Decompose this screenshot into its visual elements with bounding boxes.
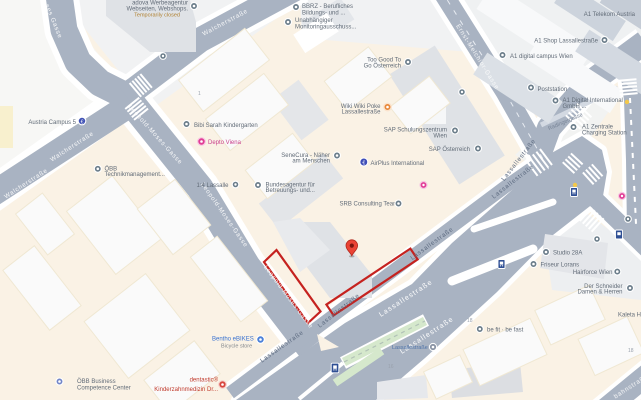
svg-text:1: 1 — [198, 91, 201, 97]
svg-text:AirPlus International: AirPlus International — [371, 161, 425, 167]
svg-text:Bicycle store: Bicycle store — [221, 344, 252, 350]
svg-text:A1 Telekom Austria: A1 Telekom Austria — [584, 12, 636, 18]
svg-text:Monitoringausschuss...: Monitoringausschuss... — [295, 25, 357, 31]
svg-text:ÖBB Business: ÖBB Business — [77, 378, 116, 385]
svg-text:Charging Station: Charging Station — [582, 131, 627, 137]
svg-text:€: € — [362, 161, 365, 167]
svg-text:Depto Viena: Depto Viena — [208, 140, 242, 146]
svg-text:Kaleta Ha...: Kaleta Ha... — [618, 313, 641, 319]
svg-text:SRB Consulting Team: SRB Consulting Team — [340, 202, 399, 208]
svg-text:be fit · be fast: be fit · be fast — [487, 328, 524, 334]
svg-text:Bildungs- und ...: Bildungs- und ... — [302, 11, 346, 17]
svg-text:Hairforce Wien: Hairforce Wien — [573, 270, 613, 276]
svg-text:Kinderzahnmedizin Dr...: Kinderzahnmedizin Dr... — [154, 387, 218, 393]
svg-text:16: 16 — [388, 364, 394, 370]
svg-text:Bentho eBIKES: Bentho eBIKES — [212, 337, 254, 343]
svg-text:Bibi Sarah Kindergarten: Bibi Sarah Kindergarten — [194, 123, 258, 129]
svg-text:Austria Campus 5: Austria Campus 5 — [28, 120, 76, 126]
svg-text:Friseur Lorans: Friseur Lorans — [541, 263, 580, 269]
svg-text:€: € — [81, 120, 84, 126]
svg-text:Go Österreich: Go Österreich — [364, 63, 401, 70]
svg-text:Technikmanagement...: Technikmanagement... — [105, 172, 166, 178]
svg-text:Temporarily closed: Temporarily closed — [134, 13, 180, 19]
svg-text:Poststation: Poststation — [538, 87, 568, 93]
svg-text:dentastic®: dentastic® — [190, 377, 219, 384]
svg-text:18: 18 — [467, 318, 473, 324]
svg-text:Lassallestraße: Lassallestraße — [341, 110, 381, 116]
svg-text:Competence Center: Competence Center — [77, 386, 131, 392]
svg-text:1:4 Lassalle: 1:4 Lassalle — [196, 183, 229, 189]
svg-text:A1 digital campus Wien: A1 digital campus Wien — [510, 54, 573, 60]
svg-text:SAP Österreich: SAP Österreich — [429, 146, 470, 153]
svg-text:Studio 28A: Studio 28A — [553, 251, 582, 257]
svg-text:A1 Shop Lassallestraße: A1 Shop Lassallestraße — [534, 39, 598, 45]
svg-text:18: 18 — [628, 348, 634, 354]
svg-text:GmbH ...: GmbH ... — [563, 104, 587, 110]
svg-text:Wien: Wien — [433, 134, 447, 140]
svg-text:BBRZ - Berufliches: BBRZ - Berufliches — [302, 4, 353, 10]
svg-text:Unabhängiger: Unabhängiger — [295, 18, 333, 24]
svg-text:am Menschen: am Menschen — [292, 159, 330, 165]
svg-text:Betreuungs- und...: Betreuungs- und... — [266, 188, 316, 194]
svg-text:Damen & Herren: Damen & Herren — [577, 290, 622, 296]
svg-text:Lassallestraße: Lassallestraße — [392, 345, 428, 351]
